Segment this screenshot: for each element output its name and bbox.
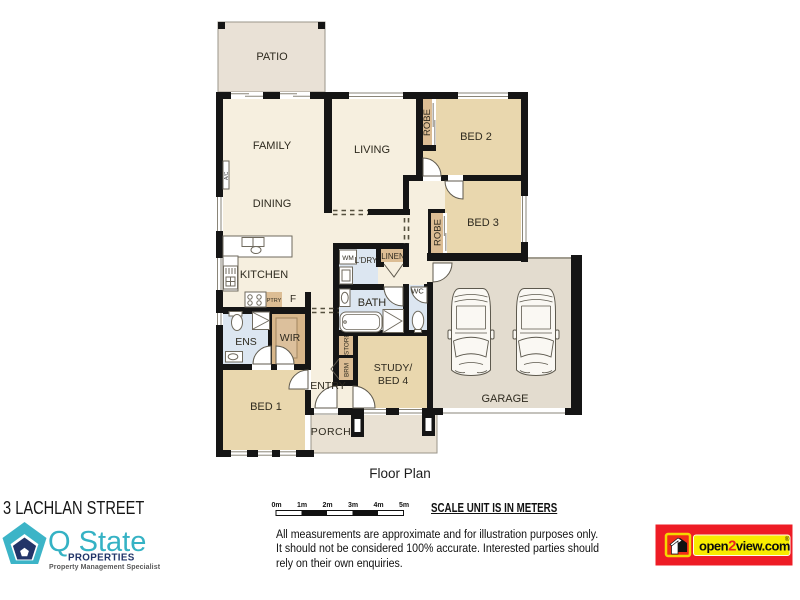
svg-text:ROBE: ROBE <box>433 219 444 246</box>
svg-text:Property Management Specialist: Property Management Specialist <box>49 564 161 571</box>
svg-text:F: F <box>290 294 296 305</box>
svg-text:ENTRY: ENTRY <box>310 380 345 392</box>
svg-text:KITCHEN: KITCHEN <box>240 269 288 281</box>
svg-text:BED 3: BED 3 <box>467 217 499 229</box>
svg-text:®: ® <box>785 536 790 543</box>
svg-text:4m: 4m <box>373 502 383 509</box>
svg-text:ROBE: ROBE <box>422 109 433 136</box>
svg-text:FAMILY: FAMILY <box>253 140 292 152</box>
svg-text:2m: 2m <box>322 502 332 509</box>
svg-text:STUDY/: STUDY/ <box>374 362 413 374</box>
svg-text:LIVING: LIVING <box>354 144 390 156</box>
svg-text:0m: 0m <box>271 502 281 509</box>
svg-text:1m: 1m <box>297 502 307 509</box>
svg-text:5m: 5m <box>399 502 409 509</box>
svg-text:LINEN: LINEN <box>381 252 405 261</box>
svg-text:PATIO: PATIO <box>256 51 288 63</box>
svg-text:PROPERTIES: PROPERTIES <box>68 553 135 564</box>
svg-text:STORE: STORE <box>344 333 351 355</box>
svg-text:WIR: WIR <box>280 332 301 344</box>
svg-text:A/C: A/C <box>224 171 230 180</box>
svg-text:PORCH: PORCH <box>311 426 351 438</box>
svg-text:ENS: ENS <box>235 336 257 348</box>
svg-text:GARAGE: GARAGE <box>481 393 528 405</box>
svg-text:3m: 3m <box>348 502 358 509</box>
svg-text:WM: WM <box>342 255 354 262</box>
svg-text:BED 4: BED 4 <box>378 375 409 387</box>
svg-text:BED 1: BED 1 <box>250 401 282 413</box>
svg-text:L'DRY: L'DRY <box>355 256 378 265</box>
svg-text:PTRY: PTRY <box>267 298 282 304</box>
svg-text:WC: WC <box>411 287 424 296</box>
svg-text:BATH: BATH <box>358 297 387 309</box>
svg-text:DINING: DINING <box>253 198 292 210</box>
svg-text:BRM: BRM <box>344 363 351 377</box>
svg-text:BED 2: BED 2 <box>460 131 492 143</box>
svg-text:open2view.com: open2view.com <box>699 538 790 555</box>
